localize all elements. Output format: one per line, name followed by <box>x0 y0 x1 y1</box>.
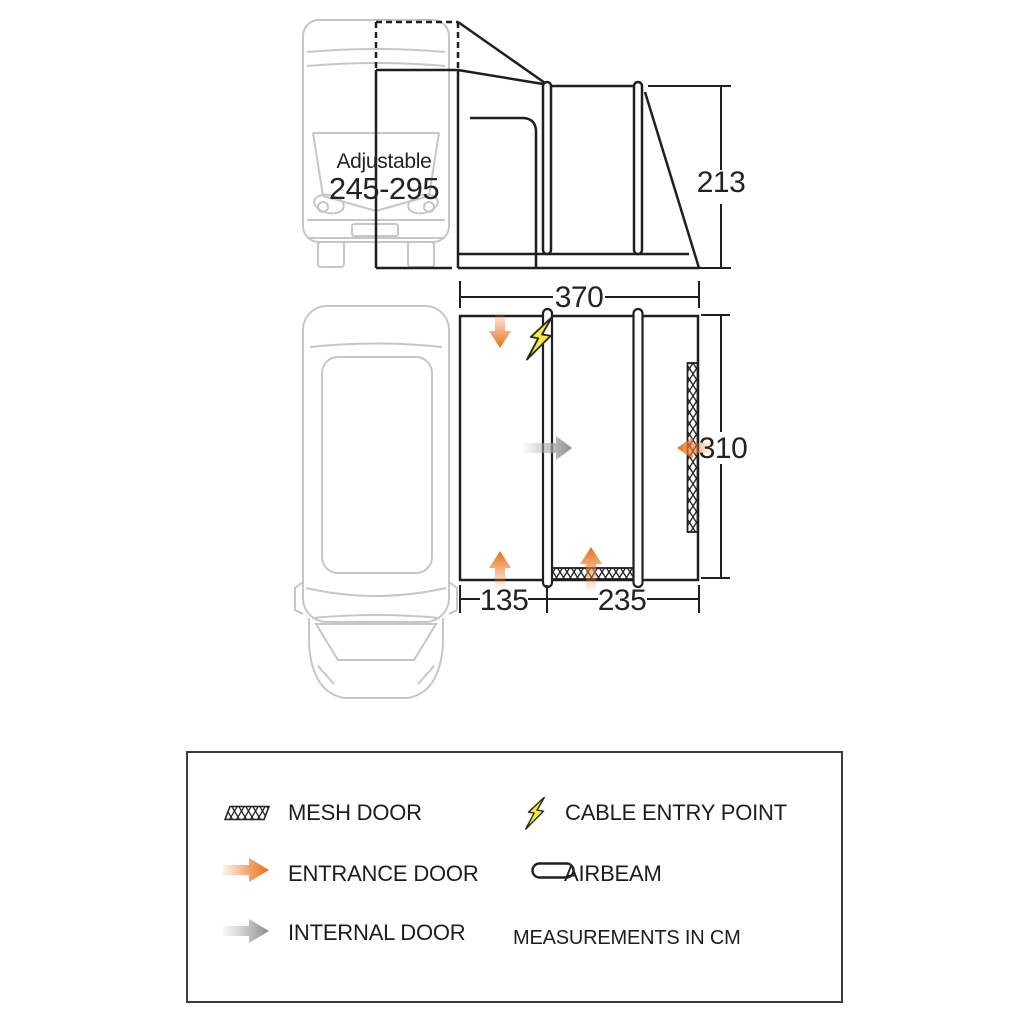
legend-label-cable-entry-point: CABLE ENTRY POINT <box>565 801 787 825</box>
van-mirror-left <box>295 582 303 614</box>
dimension-front-room-value: 135 <box>480 584 529 617</box>
adjustable-label: Adjustable <box>336 150 431 173</box>
internal-door-icon <box>223 917 271 945</box>
diagram-canvas: Adjustable 245-295 213 <box>0 0 1030 740</box>
adjustable-range-value: 245-295 <box>329 171 439 206</box>
airbeam-pole-side-2 <box>634 82 642 254</box>
plan-view <box>460 309 698 587</box>
legend-label-internal-door: INTERNAL DOOR <box>288 921 466 945</box>
dimension-height-value: 213 <box>697 166 746 199</box>
legend-label-mesh-door: MESH DOOR <box>288 801 422 825</box>
dimension-main-room-value: 235 <box>598 584 647 617</box>
van-top-outline <box>295 306 457 698</box>
legend-label-airbeam: AIRBEAM <box>564 862 662 886</box>
dimension-width-value: 370 <box>555 281 604 314</box>
side-door-outline <box>470 118 536 268</box>
mesh-door-icon <box>224 805 270 821</box>
airbeam-pole-plan-2 <box>634 309 643 587</box>
van-mirror-right <box>449 582 457 614</box>
legend-label-entrance-door: ENTRANCE DOOR <box>288 862 479 886</box>
awning-dimension-diagram: Adjustable 245-295 213 <box>0 0 1030 1030</box>
entrance-door-icon <box>223 856 271 884</box>
cable-entry-point-icon <box>525 797 549 831</box>
side-elevation <box>458 22 699 268</box>
dimension-depth-value: 310 <box>699 432 748 465</box>
legend-note-measurements: MEASUREMENTS IN CM <box>513 927 741 949</box>
airbeam-pole-side-1 <box>543 82 551 254</box>
legend-box: MESH DOOR CABLE ENTRY POINT ENTRANCE DOO… <box>186 751 843 1003</box>
